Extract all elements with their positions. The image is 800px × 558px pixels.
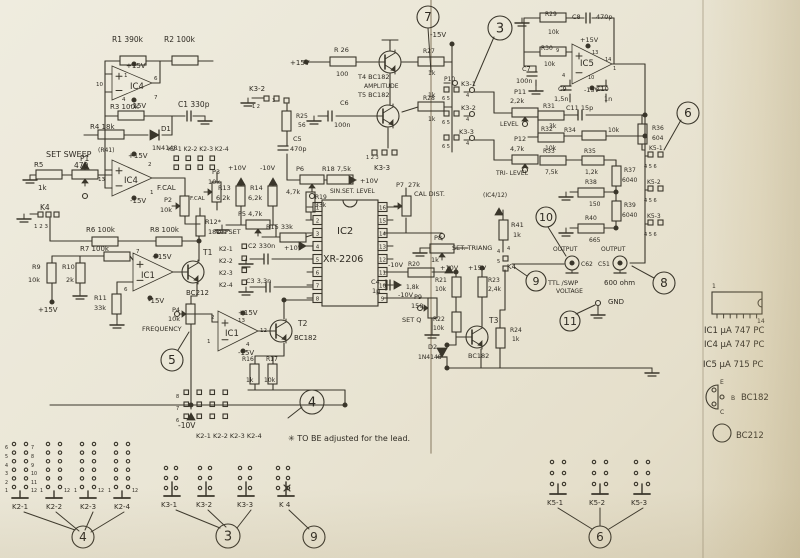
label-r37v: 6040: [622, 177, 637, 184]
label-m10v-c4: -10V: [398, 291, 414, 299]
label-p6: P6: [296, 165, 304, 173]
label-r22: R22: [433, 316, 445, 323]
resistor: [540, 156, 566, 165]
label-k4r-p4: 4: [497, 249, 500, 255]
label-ic5-p9: 9: [556, 48, 559, 54]
callout-line: [288, 407, 302, 418]
connector-pin: [562, 482, 565, 485]
label-p10lbl: P10: [444, 76, 455, 83]
label-p10v-r21: +10V: [440, 264, 459, 272]
transistor-collector: [385, 53, 395, 59]
contact-square: [54, 212, 59, 217]
connector-pin: [126, 442, 129, 445]
resistor: [499, 220, 508, 240]
legend-pin-e: [712, 388, 716, 392]
junction-dot: [586, 44, 590, 48]
contact-square: [454, 87, 459, 92]
label-p8v: 1k: [431, 256, 439, 264]
connector-pin: [12, 477, 15, 480]
potentiometer: [180, 196, 189, 216]
label-p11v: 2,2k: [510, 97, 524, 105]
ic-pin-number: 2: [316, 219, 320, 225]
label-c7: C7: [522, 65, 531, 73]
resistor: [582, 131, 606, 140]
label-t1: T1: [202, 248, 213, 257]
potentiometer: [72, 170, 98, 179]
label-r23v: 2,4k: [488, 286, 502, 293]
label-p8: P8: [434, 234, 442, 242]
connector-pin: [46, 485, 49, 488]
contact-square: [210, 156, 215, 161]
label-r21v: 10k: [435, 286, 447, 293]
transistor-collector: [188, 263, 198, 269]
connector-pin: [198, 476, 201, 479]
label-r20v: 1,8k: [406, 284, 420, 291]
label-k2c3: K2-3: [219, 270, 233, 277]
connector-pin: [114, 477, 117, 480]
label-bk33: K3-3: [237, 501, 253, 509]
resistor: [76, 263, 85, 283]
resistor: [280, 233, 306, 242]
resistor: [98, 130, 124, 139]
label-r18: R18 7,5k: [322, 165, 351, 173]
label-c11: C11 15p: [566, 104, 593, 112]
label-r39v: 6040: [622, 212, 637, 219]
connector-pin: [646, 460, 649, 463]
label-bk24: K2-4: [114, 503, 131, 511]
label-r11: R11: [94, 294, 107, 302]
label-bk53: K5-3: [631, 499, 647, 507]
callout-line: [56, 512, 79, 531]
label-p4v: 10k: [168, 315, 180, 323]
label-r29v: 10k: [548, 29, 560, 36]
callout-line: [632, 266, 654, 278]
ic-pin-number: 13: [379, 245, 386, 251]
label-r41v: 1k: [513, 231, 521, 239]
callout-number: 6: [684, 106, 692, 120]
callout-line: [473, 37, 494, 86]
contact-square: [264, 96, 269, 101]
label-g3n12: 12: [98, 488, 104, 494]
label-g1n4: 4: [5, 463, 8, 469]
callout-line: [558, 508, 592, 529]
label-caldist: CAL DIST.: [414, 190, 445, 198]
label-t5: T5 BC182: [357, 91, 389, 99]
pot-wiper-arrow: [439, 253, 445, 257]
contact-square: [444, 135, 449, 140]
connector-pin: [646, 471, 649, 474]
label-ohm600: 600 ohm: [604, 279, 635, 287]
connector-pin: [114, 460, 117, 463]
legend-pin-b: [720, 395, 724, 399]
label-r16v: 1k: [246, 377, 254, 384]
label-ic1a-name: IC1: [141, 271, 155, 281]
label-volt: VOLTAGE: [556, 288, 583, 295]
connector-pin: [80, 460, 83, 463]
connector-pin: [46, 460, 49, 463]
ic2-dip16-body: [322, 200, 378, 306]
label-ic2-name: IC2: [337, 226, 353, 237]
potentiometer: [402, 196, 411, 216]
label-c9: C9: [558, 85, 567, 93]
connector-pin: [114, 485, 117, 488]
label-r41: R41: [511, 221, 524, 229]
label-r9v: 10k: [28, 276, 40, 284]
connector-pin: [58, 442, 61, 445]
ic-pin-number: 9: [381, 297, 385, 303]
contact-square: [382, 150, 387, 155]
connector-pin: [12, 451, 15, 454]
label-g1n5: 5: [5, 454, 8, 460]
label-c7v: 100n: [516, 77, 533, 85]
connector-pin: [604, 482, 607, 485]
connector-pin: [634, 471, 637, 474]
connector-pin: [58, 477, 61, 480]
label-freq: FREQUENCY: [142, 325, 182, 333]
label-r3: R3 100k: [110, 103, 140, 111]
wire: [306, 235, 312, 237]
connector-pin: [248, 486, 251, 489]
label-k53r-pins: 4 5 6: [644, 232, 657, 238]
callout-line: [609, 508, 643, 529]
callout-number: 6: [596, 530, 604, 544]
junction-dot: [614, 226, 618, 230]
connector-pin: [114, 468, 117, 471]
label-g2n1: 1: [40, 488, 43, 494]
label-ic4b-name: IC4: [124, 176, 138, 186]
label-ic5-p10: 10: [588, 75, 594, 81]
label-fcal: F.CAL: [157, 184, 176, 192]
label-r28: R28: [423, 95, 435, 102]
callout-line: [576, 305, 595, 314]
label-g2n12: 12: [64, 488, 70, 494]
label-leg-c: C: [720, 409, 724, 416]
label-k33r: K3-3: [459, 128, 474, 136]
contact-square: [284, 98, 289, 103]
label-r26: R 26: [334, 46, 349, 54]
resistor: [408, 268, 434, 277]
connector-pin: [592, 471, 595, 474]
ic-pin-number: 12: [379, 258, 386, 264]
connector-pin: [58, 451, 61, 454]
terminal-dot: [83, 194, 88, 199]
transistor-collector: [276, 322, 286, 328]
label-r40v: 665: [589, 237, 601, 244]
label-ic4b-p2: 2: [148, 162, 152, 168]
label-c6v: 100n: [334, 121, 351, 129]
label-bk31: K3-1: [161, 501, 177, 509]
connector-pin: [634, 482, 637, 485]
label-k53r: K5-3: [647, 213, 661, 220]
resistor: [478, 277, 487, 297]
label-k32pins: 1 2: [252, 104, 260, 110]
schematic-scan-page: 12345678161514131211109 736108911544396 …: [0, 0, 800, 558]
label-p1v: 470: [74, 161, 89, 170]
label-g4n12: 12: [132, 488, 138, 494]
label-ic5-p1: 1: [613, 66, 616, 72]
potentiometer: [300, 175, 324, 184]
label-r10: R10: [62, 263, 75, 271]
label-m10v-r14: -10V: [260, 164, 276, 172]
label-k4r-p5: 5: [497, 259, 500, 265]
label-g1n11: 11: [31, 480, 37, 486]
connector-pin: [164, 466, 167, 469]
label-p15v-ic4b: +15V: [128, 152, 148, 160]
connector-pin: [12, 468, 15, 471]
dip-notch: [343, 200, 357, 207]
callout-line: [289, 510, 309, 529]
label-k32top: K3-2: [249, 85, 265, 93]
label-g1n6: 6: [5, 445, 8, 451]
label-r30: R30: [541, 45, 553, 52]
label-g1n1: 1: [5, 488, 8, 494]
label-r6: R6 100k: [86, 226, 116, 234]
connector-pin: [24, 451, 27, 454]
label-r10v: 2k: [66, 276, 74, 284]
junction-dot: [643, 134, 647, 138]
resistor: [452, 312, 461, 332]
label-g1n9: 9: [31, 463, 34, 469]
label-fcal2: F.CAL: [190, 196, 206, 202]
pot-wiper-arrow: [182, 311, 186, 317]
contact-square: [198, 156, 203, 161]
ic-pin-number: 14: [379, 232, 386, 238]
label-bk21: K2-1: [12, 503, 28, 511]
label-r5: R5: [34, 161, 43, 169]
contact-square: [197, 402, 202, 407]
supply-arrow: [495, 208, 503, 215]
label-ic1b-p12: 12: [260, 328, 267, 334]
label-r7: R7 100k: [80, 245, 110, 253]
label-g1n12: 12: [31, 488, 37, 494]
label-r27: R27: [423, 48, 435, 55]
ic-pin-number: 3: [316, 232, 320, 238]
connector-pin: [126, 468, 129, 471]
junction-dot: [445, 343, 449, 347]
connector-pin: [286, 466, 289, 469]
label-r34v: 10k: [608, 127, 620, 134]
label-bk23: K2-3: [80, 503, 96, 511]
transistor-collector: [472, 328, 482, 334]
pot-wiper-arrow: [398, 203, 402, 209]
callout-line: [664, 120, 681, 150]
connector-pin: [126, 451, 129, 454]
label-r1: R1 390k: [112, 35, 144, 44]
label-ic4b-p1: 1: [150, 190, 154, 196]
connector-pin: [208, 466, 211, 469]
label-r33v: 7,5k: [545, 169, 559, 176]
label-c51: C51: [598, 261, 610, 268]
label-t2: T2: [297, 319, 308, 328]
terminal-dot: [310, 194, 315, 199]
connector-pin: [198, 486, 201, 489]
label-ic1b-p13: 13: [238, 318, 245, 324]
connector-pin: [24, 477, 27, 480]
ic-pin-number: 5: [316, 258, 320, 264]
label-r21: R21: [435, 277, 447, 284]
label-c10: C10: [596, 85, 609, 93]
label-k52r: K5-2: [647, 179, 661, 186]
connector-pin: [592, 460, 595, 463]
ic-pin-number: 16: [379, 206, 386, 212]
label-p15v-r9: +15V: [38, 306, 58, 314]
label-ic412: (IC4/12): [483, 192, 507, 199]
label-leg-ic1: IC1 μA 747 PC: [704, 326, 765, 336]
connector-pin: [58, 485, 61, 488]
connector-pin: [24, 442, 27, 445]
contact-square: [648, 220, 653, 225]
callout-number: 3: [224, 530, 232, 545]
label-k2bot: K2-1 K2-2 K2-3 K2-4: [196, 432, 262, 440]
contact-square: [658, 186, 663, 191]
contact-square: [454, 111, 459, 116]
ic-pin-number: 11: [379, 271, 386, 277]
label-ic4b-p13: 13: [98, 177, 105, 183]
label-c9v: 1,5n: [554, 95, 568, 103]
label-r31: R31: [543, 103, 555, 110]
output-jack-pin: [570, 261, 574, 265]
connector-pin: [562, 460, 565, 463]
connector-pin: [238, 466, 241, 469]
label-gnd-lbl: GND: [608, 298, 624, 306]
label-k32pin3: 3: [272, 98, 275, 104]
label-c3: C3 3,3n: [246, 277, 271, 285]
supply-arrow: [269, 178, 277, 185]
label-setq: SET Q: [402, 316, 421, 324]
connector-pin: [276, 486, 279, 489]
junction-dot: [189, 403, 193, 407]
contact-square: [197, 390, 202, 395]
connector-pin: [126, 460, 129, 463]
connector-pin: [126, 477, 129, 480]
pot-wiper-arrow: [522, 117, 528, 121]
resistor: [578, 188, 604, 197]
ic-pin-number: 7: [316, 284, 320, 290]
contact-square: [444, 87, 449, 92]
label-k4-right: K4: [507, 263, 517, 271]
connector-pin: [126, 485, 129, 488]
label-m10v-pin12: -10V: [388, 261, 404, 269]
label-p15v-ic5: +15V: [580, 36, 599, 44]
label-r5v: 1k: [38, 184, 47, 192]
label-r32: R32: [541, 126, 553, 133]
pot-wiper-arrow: [255, 229, 261, 233]
connector-pin: [646, 482, 649, 485]
contact-square: [658, 152, 663, 157]
label-k32r-pins: 6 5: [442, 120, 450, 126]
contact-square: [210, 402, 215, 407]
callout-number: 4: [308, 396, 316, 411]
label-c4v: 1μ: [372, 287, 380, 295]
contact-square: [198, 165, 203, 170]
connector-pin: [276, 476, 279, 479]
label-p11: P11: [514, 88, 526, 96]
label-g3n1: 1: [74, 488, 77, 494]
connector-pin: [164, 476, 167, 479]
connector-pin: [92, 451, 95, 454]
label-r25: R25: [296, 113, 308, 120]
connector-pin: [12, 442, 15, 445]
label-r35: R35: [584, 148, 596, 155]
label-r8: R8 100k: [150, 226, 180, 234]
label-p3: P3: [212, 168, 220, 176]
label-out1: OUTPUT: [553, 246, 578, 253]
label-leg-e: E: [720, 379, 724, 386]
label-ic1b-p2: 2: [211, 315, 215, 321]
label-r17v: 10k: [264, 377, 276, 384]
label-bk51: K5-1: [547, 499, 563, 507]
label-ic5-name: IC5: [580, 59, 594, 69]
label-level: LEVEL: [500, 121, 519, 128]
contact-square: [648, 152, 653, 157]
terminal-dot: [470, 112, 475, 117]
resistor: [538, 133, 564, 142]
label-r39: R39: [624, 202, 636, 209]
callout-number: 5: [168, 353, 176, 367]
label-k32r-p4: 4: [466, 117, 469, 123]
label-d2v: 1N4148: [418, 354, 442, 361]
contact-square: [392, 150, 397, 155]
resistor: [330, 57, 356, 66]
label-r12: R12*: [205, 218, 222, 226]
label-r35v: 1,2k: [585, 169, 599, 176]
connector-pin: [24, 460, 27, 463]
label-leg-pin1: 1: [712, 283, 716, 290]
connector-pin: [92, 442, 95, 445]
label-r14: R14: [250, 184, 263, 192]
connector-pin: [92, 485, 95, 488]
contact-square: [210, 390, 215, 395]
connector-grid-layer: [12, 156, 650, 498]
terminal-dot: [596, 301, 601, 306]
connector-pin: [80, 442, 83, 445]
label-m15v-ic4b: -15V: [130, 197, 146, 205]
supply-arrow: [394, 281, 401, 289]
callout-number: 4: [79, 530, 87, 544]
label-leg-b: B: [731, 395, 735, 402]
connector-pin: [46, 451, 49, 454]
connector-pin: [46, 477, 49, 480]
junction-dot: [643, 113, 647, 117]
label-k31r-pins: 6 5: [442, 96, 450, 102]
label-out2: OUTPUT: [601, 246, 626, 253]
connector-pin: [92, 468, 95, 471]
callout-number: 11: [563, 315, 577, 328]
label-p12v: 4,7k: [510, 145, 524, 153]
contact-square: [658, 220, 663, 225]
pot-wiper-arrow: [424, 305, 428, 311]
contact-square: [210, 414, 215, 419]
junction-dot: [282, 298, 286, 302]
label-r30v: 10k: [544, 61, 556, 68]
label-p10v-pin4: +10V: [284, 244, 303, 252]
label-p15v-r23: +15V: [468, 264, 487, 272]
contact-square: [174, 165, 179, 170]
connector-pin: [164, 486, 167, 489]
callout-number: 8: [660, 276, 668, 290]
legend-dip14-body: [712, 292, 762, 314]
contact-square: [38, 212, 43, 217]
label-r41ref: (R41): [98, 147, 115, 154]
legend-pin-c: [712, 402, 716, 406]
connector-pin: [92, 460, 95, 463]
label-r20: R20: [408, 261, 420, 268]
connector-pin: [604, 460, 607, 463]
label-leg-bc182: BC182: [741, 393, 769, 403]
supply-arrow: [237, 178, 245, 185]
label-r19v: 33k: [315, 202, 327, 209]
label-kb6: 6: [176, 418, 179, 424]
